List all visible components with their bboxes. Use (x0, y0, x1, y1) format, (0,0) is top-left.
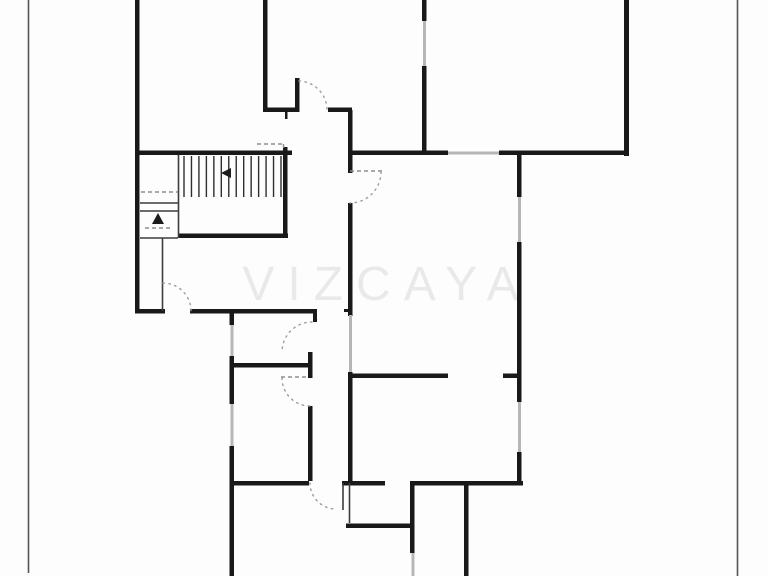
wall-segment (178, 234, 288, 239)
window-segment (518, 197, 521, 242)
wall-segment (348, 151, 448, 156)
stair-direction-arrow (152, 213, 164, 224)
wall-segment (624, 0, 629, 156)
door-swing-arc (282, 322, 312, 352)
door-swing-arc (310, 483, 336, 509)
door-swing-arc (163, 283, 191, 311)
door-swing-arc (282, 378, 310, 406)
wall-segment (350, 374, 448, 379)
wall-segment (464, 485, 469, 576)
wall-segment (348, 372, 353, 483)
floorplan-page: VIZCAYA (0, 0, 768, 576)
window-segment (448, 152, 499, 155)
wall-segment (517, 242, 522, 402)
wall-segment (422, 66, 427, 152)
window-segment (349, 315, 352, 372)
wall-segment (517, 155, 522, 197)
wall-segment (348, 110, 353, 173)
wall-segment (283, 147, 288, 238)
wall-segment (231, 481, 309, 486)
window-segment (412, 553, 415, 576)
wall-segment (348, 203, 353, 316)
window-segment (231, 404, 234, 446)
wall-segment (422, 0, 427, 21)
wall-segment (308, 352, 313, 378)
window-segment (231, 325, 234, 356)
wall-segment (346, 524, 413, 529)
door-swing-arc (350, 172, 381, 203)
wall-segment (230, 446, 235, 576)
wall-segment (308, 406, 313, 481)
wall-segment (230, 313, 235, 325)
wall-segment (503, 374, 519, 379)
wall-segment (517, 452, 522, 483)
floor-plan-canvas: VIZCAYA (0, 0, 768, 576)
wall-segment (313, 309, 317, 322)
wall-segment (135, 309, 165, 314)
wall-segment (135, 0, 140, 313)
wall-segment (135, 151, 292, 156)
window-segment (423, 21, 426, 66)
stair-direction-arrow (221, 168, 231, 178)
wall-segment (344, 309, 348, 312)
window-segment (518, 402, 521, 452)
wall-segment (499, 151, 627, 156)
wall-segment (263, 108, 298, 113)
door-swing-arc (299, 81, 327, 110)
wall-segment (410, 481, 415, 553)
wall-segment (231, 363, 310, 368)
watermark: VIZCAYA (242, 258, 531, 311)
wall-segment (295, 78, 300, 112)
wall-segment (263, 0, 268, 110)
wall-segment (411, 481, 523, 486)
wall-segment (190, 309, 317, 314)
wall-segment (285, 112, 288, 119)
